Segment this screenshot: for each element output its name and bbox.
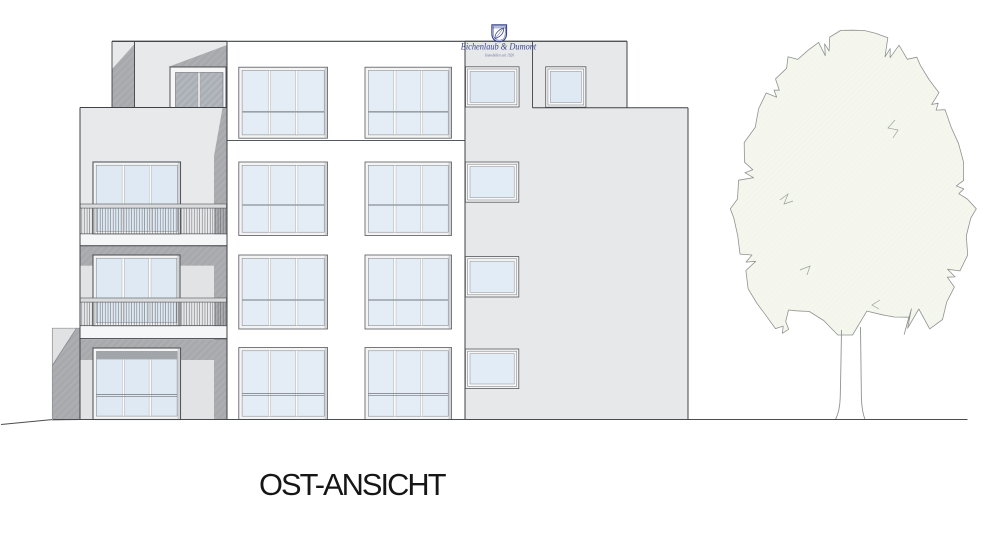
svg-text:OST-ANSICHT: OST-ANSICHT	[259, 467, 447, 502]
svg-text:Eichenlaub & Dumont: Eichenlaub & Dumont	[460, 42, 537, 52]
svg-text:Immobilien seit 1920: Immobilien seit 1920	[484, 53, 514, 58]
